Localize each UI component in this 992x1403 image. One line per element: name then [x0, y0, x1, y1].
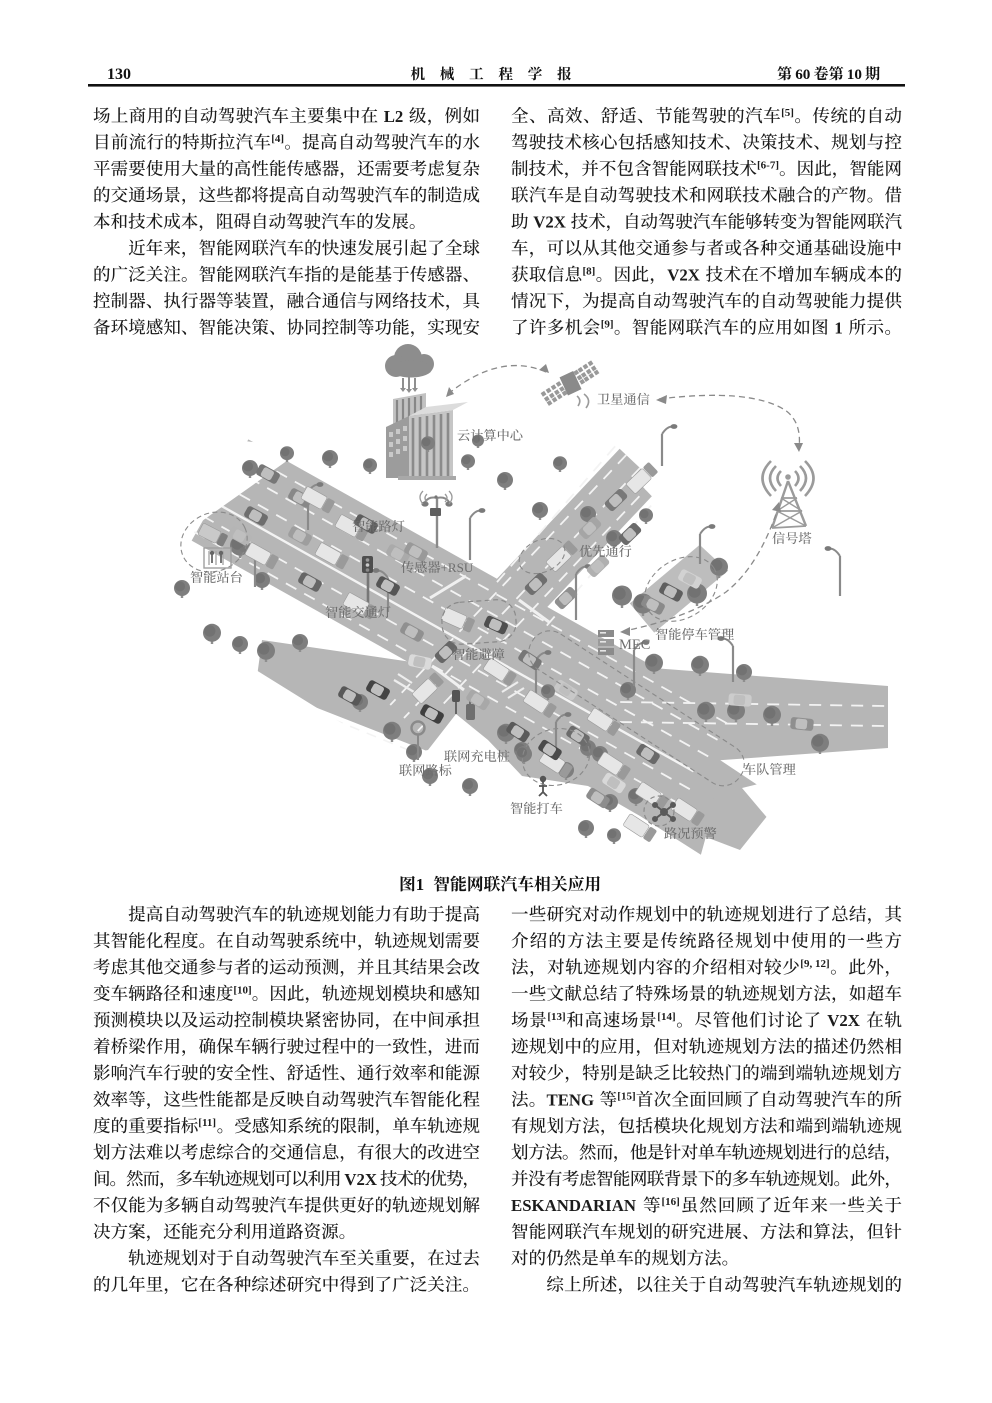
- svg-text:130: 130: [107, 66, 131, 83]
- svg-text:1: 1: [834, 318, 842, 337]
- svg-text:TENG: TENG: [547, 1091, 595, 1110]
- svg-text:[9]: [9]: [601, 318, 614, 330]
- svg-text:[9, 12]: [9, 12]: [800, 958, 829, 970]
- svg-text:[14]: [14]: [657, 1011, 675, 1023]
- svg-text:V2X: V2X: [827, 1011, 860, 1030]
- svg-text:ESKANDARIAN: ESKANDARIAN: [511, 1196, 636, 1215]
- svg-text:V2X: V2X: [667, 266, 700, 285]
- svg-text:[11]: [11]: [198, 1117, 216, 1129]
- svg-text:1: 1: [416, 875, 424, 894]
- svg-text:10: 10: [847, 66, 863, 83]
- svg-text:[16]: [16]: [662, 1196, 680, 1208]
- svg-text:L2: L2: [384, 107, 404, 126]
- svg-text:[10]: [10]: [233, 985, 251, 997]
- svg-text:V2X: V2X: [344, 1170, 377, 1189]
- svg-text:60: 60: [795, 66, 811, 83]
- svg-text:[6-7]: [6-7]: [757, 160, 779, 172]
- svg-text:MEC: MEC: [619, 637, 650, 653]
- svg-text:+RSU: +RSU: [441, 560, 474, 575]
- svg-text:[5]: [5]: [781, 107, 794, 119]
- svg-text:[15]: [15]: [617, 1091, 635, 1103]
- svg-text:V2X: V2X: [533, 213, 566, 232]
- svg-text:[4]: [4]: [271, 133, 284, 145]
- svg-text:[13]: [13]: [547, 1011, 565, 1023]
- svg-text:[8]: [8]: [583, 266, 596, 278]
